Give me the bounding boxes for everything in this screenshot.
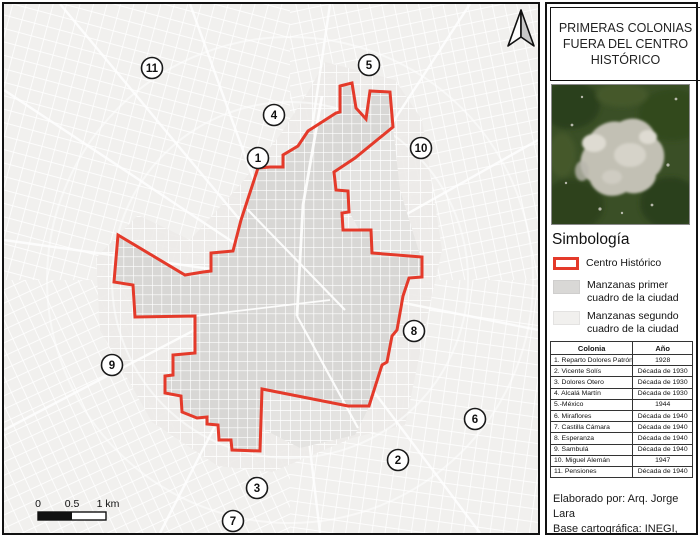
svg-text:3: 3 xyxy=(254,483,260,495)
table-row: 1. Reparto Dolores Patrón1928 xyxy=(551,355,693,366)
svg-text:11: 11 xyxy=(146,63,159,75)
colonias-table: Colonia Año 1. Reparto Dolores Patrón192… xyxy=(550,341,693,478)
ano-cell: Década de 1940 xyxy=(633,466,693,477)
map-layout-sheet: 0 0.5 1 km 1234567891011 PRIMERAS COLONI… xyxy=(0,0,700,539)
colonia-marker-1: 1 xyxy=(248,148,269,169)
table-row: 3. Dolores OteroDécada de 1930 xyxy=(551,377,693,388)
colonia-cell: 4. Alcalá Martín xyxy=(551,388,633,399)
svg-text:10: 10 xyxy=(415,143,428,155)
legend-item-label: Manzanas primer cuadro de la ciudad xyxy=(587,279,682,305)
colonia-marker-9: 9 xyxy=(102,355,123,376)
svg-text:1 km: 1 km xyxy=(97,498,120,510)
ano-cell: Década de 1930 xyxy=(633,366,693,377)
svg-text:2: 2 xyxy=(395,455,401,467)
ano-cell: 1947 xyxy=(633,455,693,466)
table-row: 11. PensionesDécada de 1940 xyxy=(551,466,693,477)
colonia-marker-4: 4 xyxy=(264,105,285,126)
legend-item-manzanas-segundo: Manzanas segundo cuadro de la ciudad xyxy=(553,310,682,336)
legend-heading: Simbología xyxy=(552,231,630,249)
svg-text:7: 7 xyxy=(230,516,236,528)
legend-item-label: Centro Histórico xyxy=(586,257,661,270)
svg-text:6: 6 xyxy=(472,414,478,426)
colonia-marker-5: 5 xyxy=(359,55,380,76)
table-header-ano: Año xyxy=(633,342,693,355)
colonia-marker-6: 6 xyxy=(465,409,486,430)
colonia-cell: 10. Miguel Alemán xyxy=(551,455,633,466)
svg-text:0.5: 0.5 xyxy=(65,498,80,510)
credit-line: Base cartográfica: INEGI, 2020 xyxy=(553,522,696,539)
svg-text:8: 8 xyxy=(411,326,418,338)
legend-item-centro-historico: Centro Histórico xyxy=(553,257,661,270)
manzanas-primer-swatch-icon xyxy=(553,280,580,294)
ano-cell: 1944 xyxy=(633,399,693,410)
colonia-cell: 6. Miraflores xyxy=(551,410,633,421)
satellite-thumbnail xyxy=(551,84,690,225)
centro-historico-swatch-icon xyxy=(553,257,579,270)
table-row: 10. Miguel Alemán1947 xyxy=(551,455,693,466)
colonia-marker-3: 3 xyxy=(247,478,268,499)
colonia-cell: 9. Sambulá xyxy=(551,444,633,455)
page-title: PRIMERAS COLONIAS FUERA DEL CENTRO HISTÓ… xyxy=(550,7,700,81)
map-canvas[interactable]: 0 0.5 1 km 1234567891011 xyxy=(2,2,540,535)
colonia-marker-11: 11 xyxy=(142,58,163,79)
colonia-marker-8: 8 xyxy=(404,321,425,342)
legend-item-label: Manzanas segundo cuadro de la ciudad xyxy=(587,310,682,336)
table-row: 7. Castilla CámaraDécada de 1940 xyxy=(551,422,693,433)
table-row: 6. MirafloresDécada de 1940 xyxy=(551,410,693,421)
ano-cell: Década de 1940 xyxy=(633,410,693,421)
table-row: 5.-México1944 xyxy=(551,399,693,410)
svg-text:5: 5 xyxy=(366,60,373,72)
credits-block: Elaborado por: Arq. Jorge LaraBase carto… xyxy=(553,492,696,539)
table-row: 2. Vicente SolísDécada de 1930 xyxy=(551,366,693,377)
colonia-cell: 3. Dolores Otero xyxy=(551,377,633,388)
ano-cell: 1928 xyxy=(633,355,693,366)
legend-item-manzanas-primer: Manzanas primer cuadro de la ciudad xyxy=(553,279,682,305)
colonia-cell: 8. Esperanza xyxy=(551,433,633,444)
colonia-cell: 5.-México xyxy=(551,399,633,410)
colonia-marker-10: 10 xyxy=(411,138,432,159)
svg-text:9: 9 xyxy=(109,360,115,372)
svg-text:0: 0 xyxy=(35,498,41,510)
colonia-cell: 11. Pensiones xyxy=(551,466,633,477)
table-header-colonia: Colonia xyxy=(551,342,633,355)
colonia-cell: 7. Castilla Cámara xyxy=(551,422,633,433)
credit-line: Elaborado por: Arq. Jorge Lara xyxy=(553,492,696,522)
colonia-marker-7: 7 xyxy=(223,511,244,532)
colonia-cell: 1. Reparto Dolores Patrón xyxy=(551,355,633,366)
ano-cell: Década de 1930 xyxy=(633,377,693,388)
layout-side-panel: PRIMERAS COLONIAS FUERA DEL CENTRO HISTÓ… xyxy=(545,2,698,535)
colonia-cell: 2. Vicente Solís xyxy=(551,366,633,377)
svg-text:4: 4 xyxy=(271,110,278,122)
ano-cell: Década de 1930 xyxy=(633,388,693,399)
colonia-marker-2: 2 xyxy=(388,450,409,471)
table-row: 8. EsperanzaDécada de 1940 xyxy=(551,433,693,444)
ano-cell: Década de 1940 xyxy=(633,422,693,433)
table-row: 4. Alcalá MartínDécada de 1930 xyxy=(551,388,693,399)
svg-text:1: 1 xyxy=(255,153,262,165)
ano-cell: Década de 1940 xyxy=(633,444,693,455)
ano-cell: Década de 1940 xyxy=(633,433,693,444)
manzanas-segundo-swatch-icon xyxy=(553,311,580,325)
table-row: 9. SambuláDécada de 1940 xyxy=(551,444,693,455)
